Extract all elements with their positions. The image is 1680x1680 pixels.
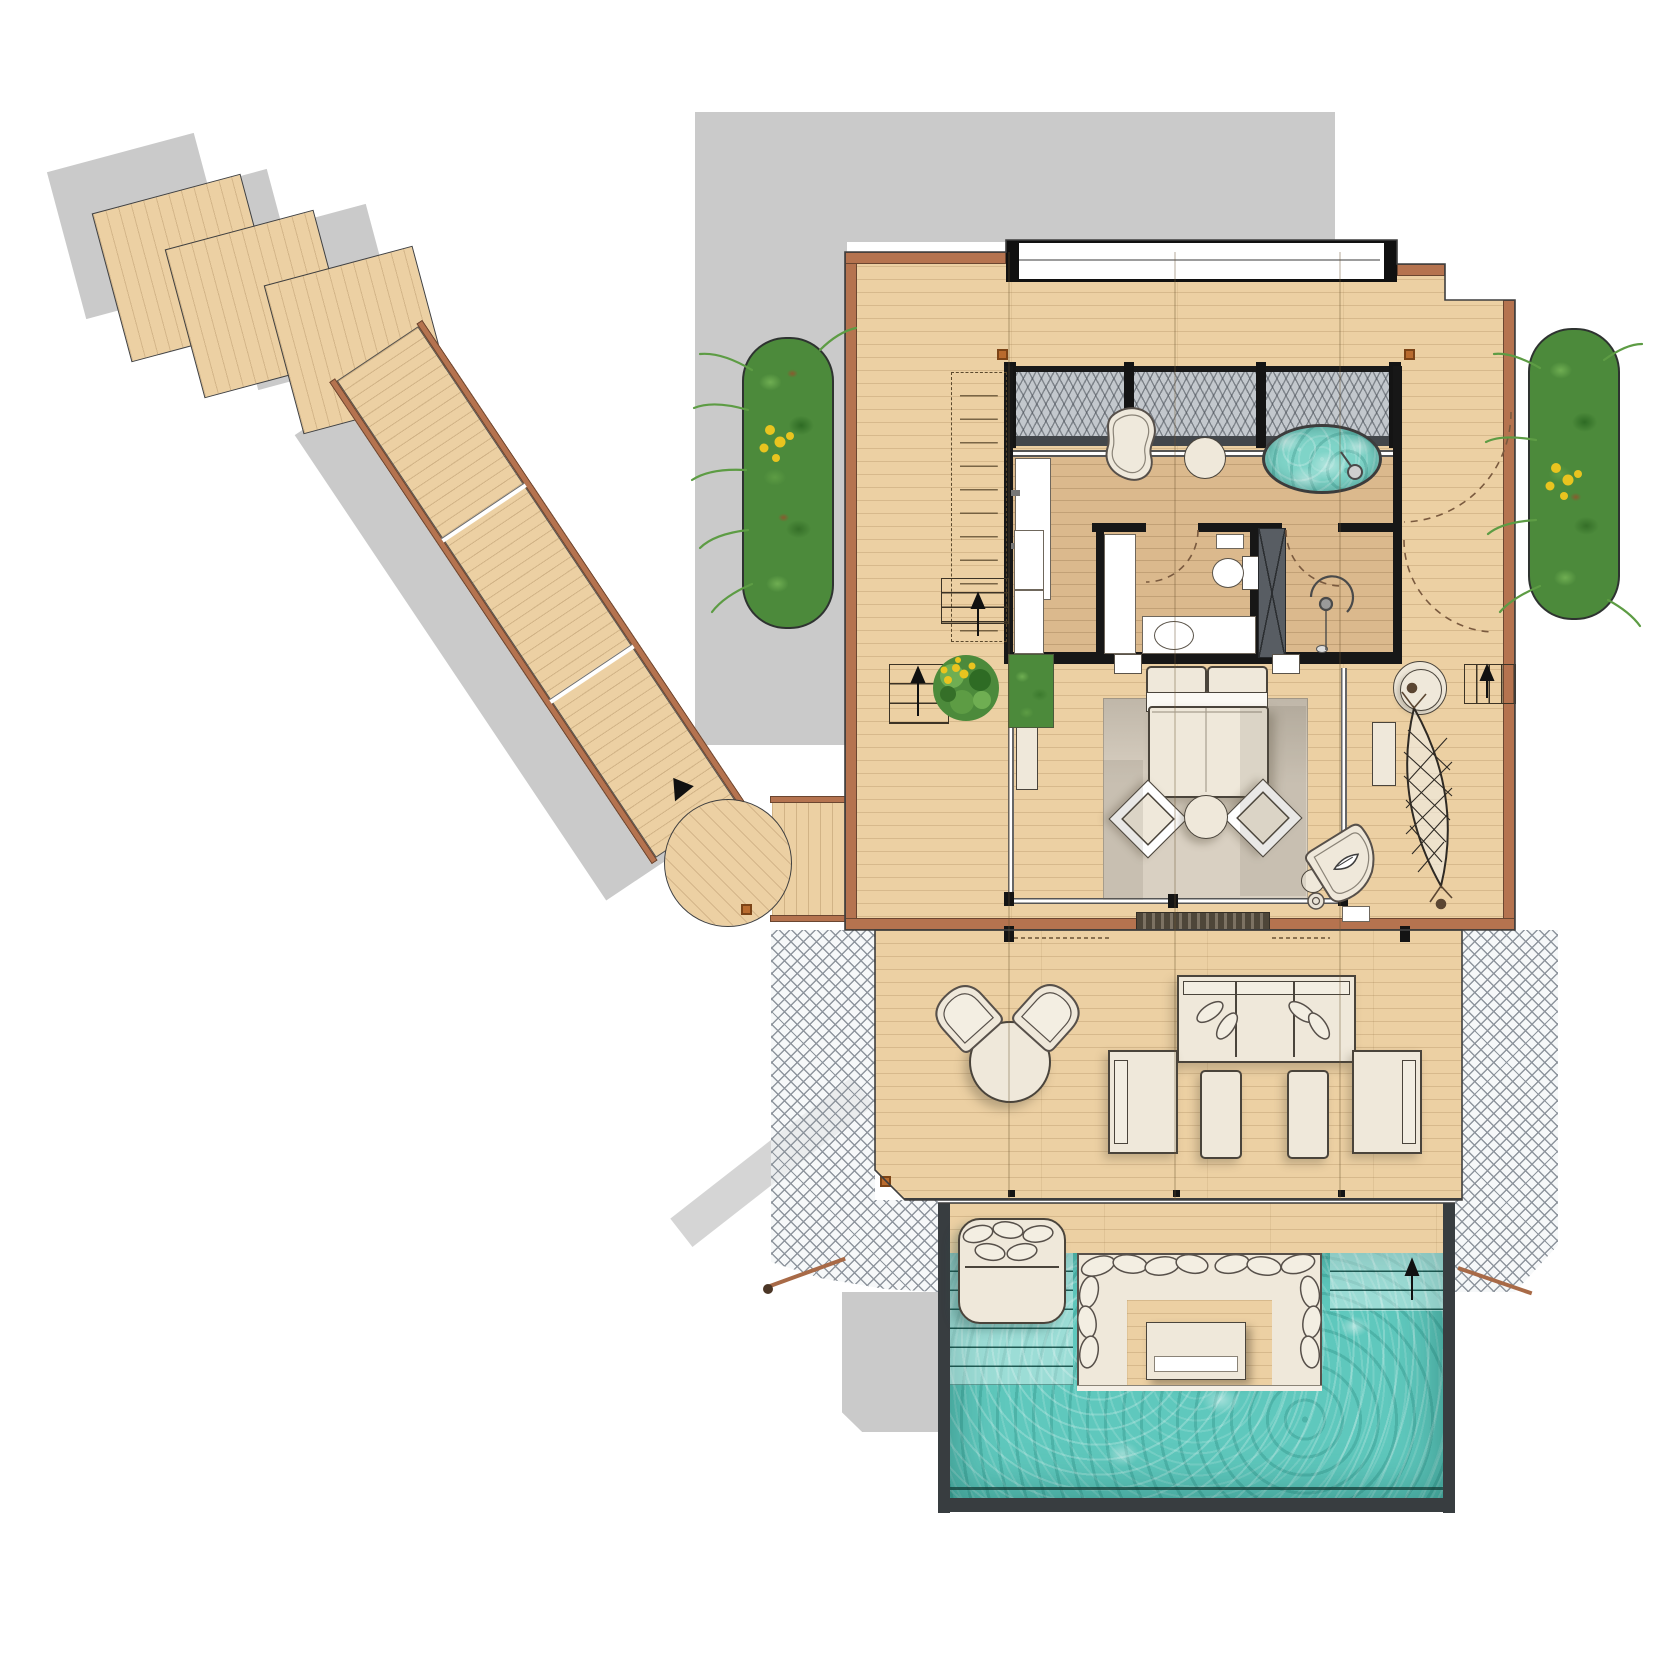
deck-dot [1338,1190,1345,1197]
pool-overflow-edge [950,1487,1443,1490]
deck-marker [997,349,1008,360]
lounge-armchair [1108,1050,1178,1154]
toilet-bowl [1212,558,1244,588]
catamaran-net-right [1455,930,1558,1292]
deck-stairs-lower [889,664,949,724]
sofa-divider [1235,981,1237,1057]
glass-post [1004,892,1014,906]
wall-vert [1096,523,1104,663]
wall-mid [1338,523,1402,532]
lounge-tray [1154,1356,1238,1372]
stool [1184,437,1226,479]
net-post [763,1284,773,1294]
glass-wall-east [1341,668,1347,900]
track-post [1168,894,1178,908]
side-ottoman [1200,1070,1242,1159]
toilet-cistern [1216,534,1244,549]
ottoman [1184,795,1228,839]
armchair-back [1402,1060,1416,1144]
glass-slider-track [1012,898,1344,905]
side-table [1301,869,1325,893]
dining-table [969,1021,1051,1103]
sofa-divider [1293,981,1295,1057]
outdoor-sofa [1177,975,1356,1063]
daybed-seam [965,1266,1059,1268]
deck-dot [1008,1190,1015,1197]
skylight-cap-right [1384,243,1394,279]
deck-trim-left [845,252,857,930]
deck-trim-top-left [845,252,1006,264]
bed-duvet [1148,706,1269,798]
deck-marker [1404,349,1415,360]
deck-marker [741,904,752,915]
deck-post [1004,926,1014,942]
wardrobe-divider [1015,589,1043,591]
pool-wall-shadow [842,1292,938,1432]
sofa-back [1183,981,1350,995]
deck-stairs-east [1464,664,1516,704]
square-planter [1008,654,1054,728]
hall-closet [1104,534,1136,654]
armchair-back [1114,1060,1128,1144]
side-ottoman [1287,1070,1329,1159]
lounge-armchair [1352,1050,1422,1154]
faucet [1011,490,1020,496]
deck-trim-top-right [1397,264,1445,276]
deck-dot [1173,1190,1180,1197]
planter-left [742,337,834,629]
floor-plan [0,0,1680,1680]
deck-stairs-upper [941,578,1009,624]
floating-daybed [958,1218,1066,1324]
toilet-tank [1242,556,1259,590]
window-bench [1016,724,1038,790]
glass-post [1338,892,1348,906]
jacuzzi-tub [1262,424,1382,494]
pool-steps-right [1330,1253,1443,1311]
skylight-band [1006,240,1397,282]
deck-trim-right [1503,300,1515,930]
skylight-mullion [1019,259,1380,261]
deck-marker [880,1176,891,1187]
window-bench [1372,722,1396,786]
skylight-cap-left [1009,243,1019,279]
floor-mat [1342,906,1370,922]
sunken-lounge-rim [1077,1385,1322,1391]
slatted-bench [1136,912,1270,930]
pool-frame-right [1443,1203,1455,1513]
wc-basin [1154,621,1194,650]
deck-post [1400,926,1410,942]
nightstand [1272,654,1300,674]
wall-post [1256,362,1266,448]
service-shaft [1258,528,1286,658]
wardrobe-units [1014,530,1044,654]
round-daybed-top [1400,669,1442,711]
wall-right [1393,366,1402,664]
planter-right [1528,328,1620,620]
wall-post [1124,362,1134,448]
shower-drain [1316,645,1328,653]
nightstand [1114,654,1142,674]
villa-shadow-top [695,112,1335,242]
pool-frame-left [938,1203,950,1513]
pool-frame-bottom [938,1498,1455,1512]
circular-landing [665,800,791,926]
